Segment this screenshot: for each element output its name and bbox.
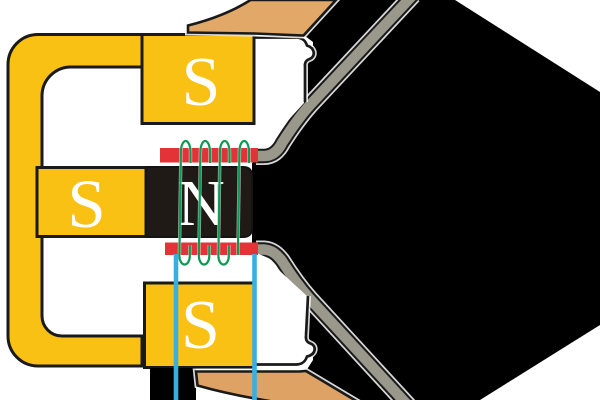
svg-text:S: S xyxy=(181,287,220,364)
svg-text:S: S xyxy=(182,44,221,121)
svg-text:S: S xyxy=(67,166,105,242)
